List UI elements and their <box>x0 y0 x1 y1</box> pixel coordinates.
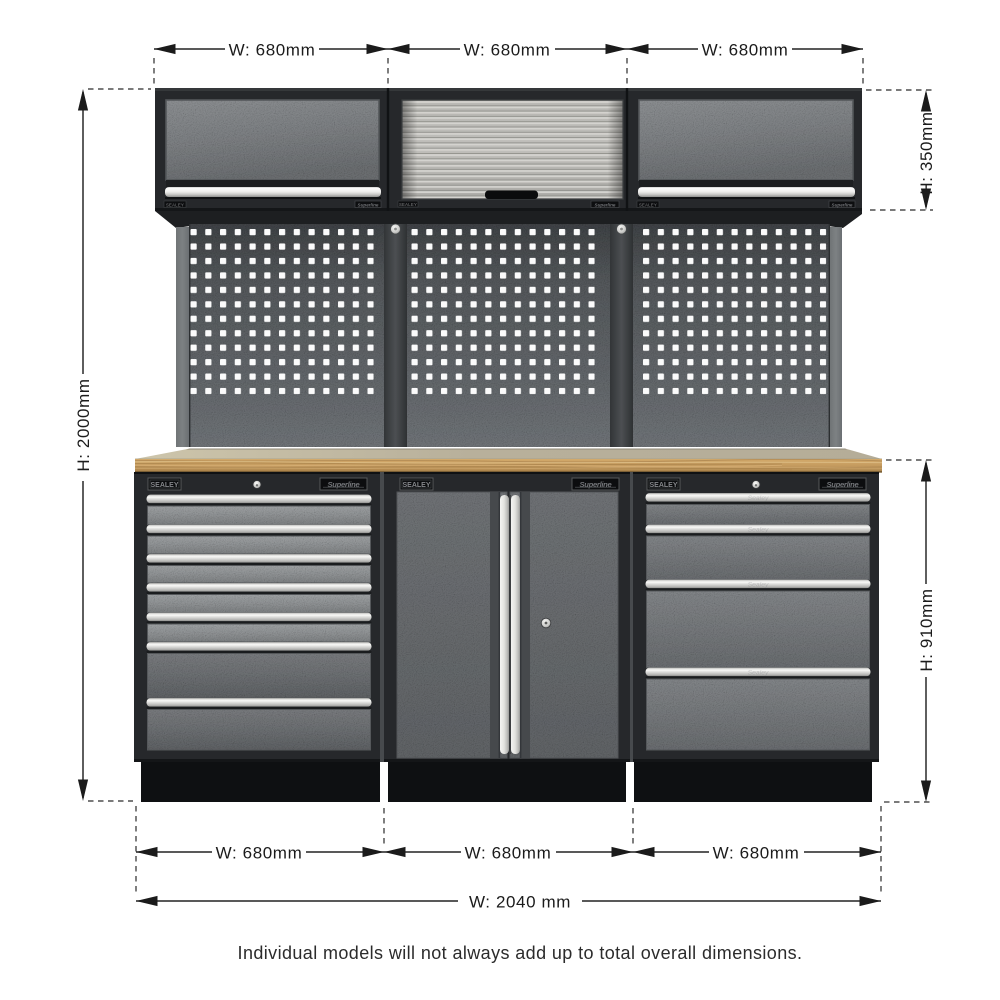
svg-text:W: 2040 mm: W: 2040 mm <box>469 893 571 912</box>
svg-text:H: 350mm: H: 350mm <box>917 111 936 194</box>
svg-text:W: 680mm: W: 680mm <box>702 41 789 60</box>
svg-text:SEALEY: SEALEY <box>166 203 184 208</box>
svg-text:Superline: Superline <box>595 202 616 207</box>
svg-text:SEALEY: SEALEY <box>399 202 417 207</box>
svg-text:Sealey: Sealey <box>748 582 769 589</box>
svg-text:Individual models will not alw: Individual models will not always add up… <box>238 943 803 963</box>
svg-text:H: 2000mm: H: 2000mm <box>74 378 93 471</box>
svg-text:W: 680mm: W: 680mm <box>465 844 552 863</box>
svg-text:Sealey: Sealey <box>748 495 769 502</box>
svg-text:SEALEY: SEALEY <box>649 482 677 489</box>
svg-text:Sealey: Sealey <box>748 527 769 534</box>
svg-text:SEALEY: SEALEY <box>150 482 178 489</box>
svg-text:Superline: Superline <box>358 202 379 207</box>
svg-text:W: 680mm: W: 680mm <box>464 41 551 60</box>
svg-text:W: 680mm: W: 680mm <box>216 844 303 863</box>
svg-text:SEALEY: SEALEY <box>402 482 430 489</box>
svg-text:W: 680mm: W: 680mm <box>229 41 316 60</box>
svg-text:SEALEY: SEALEY <box>639 203 657 208</box>
svg-text:Superline: Superline <box>832 202 853 207</box>
svg-text:W: 680mm: W: 680mm <box>713 844 800 863</box>
svg-text:H: 910mm: H: 910mm <box>917 588 936 671</box>
svg-text:Sealey: Sealey <box>748 670 769 677</box>
